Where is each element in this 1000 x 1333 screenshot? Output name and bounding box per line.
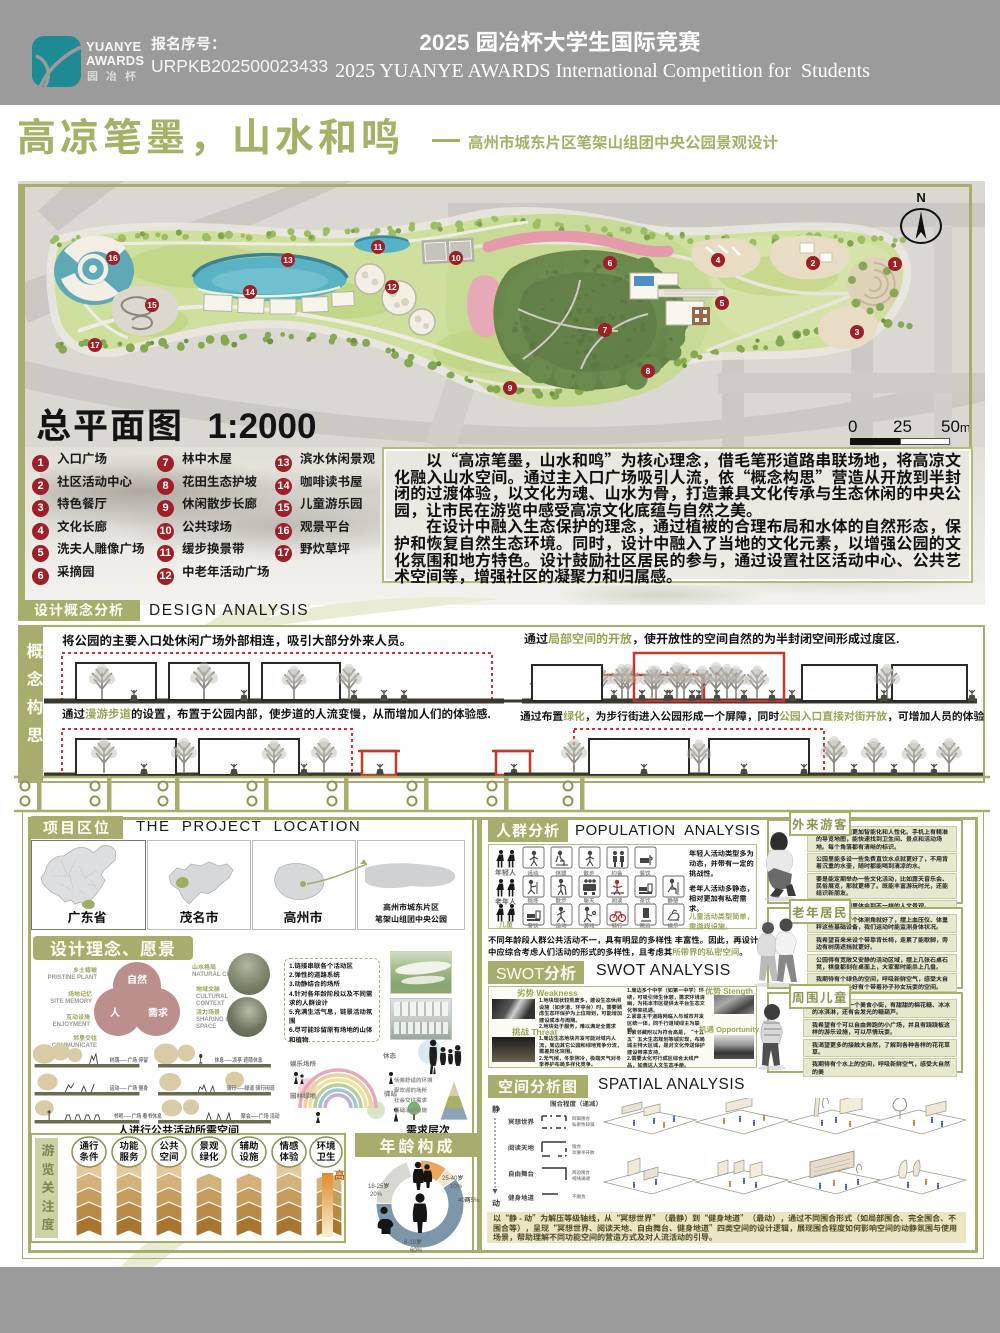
svg-text:社会交往需求: 社会交往需求 <box>394 1096 428 1104</box>
svg-text:高: 高 <box>334 1167 345 1183</box>
svg-text:茶饮: 茶饮 <box>639 897 651 905</box>
svg-text:私密性较强: 私密性较强 <box>572 1122 595 1128</box>
svg-text:餐饮: 餐饮 <box>527 922 539 929</box>
svg-text:10: 10 <box>451 253 461 263</box>
svg-text:茂名市: 茂名市 <box>179 907 218 926</box>
svg-text:自然: 自然 <box>127 971 147 986</box>
svg-text:散步: 散步 <box>555 897 567 905</box>
svg-text:1: 1 <box>893 259 898 269</box>
svg-text:8: 8 <box>646 366 651 376</box>
svg-text:骑行: 骑行 <box>611 922 623 929</box>
svg-text:书吧——广场 看书休息: 书吧——广场 看书休息 <box>114 1111 163 1120</box>
svg-text:13: 13 <box>283 255 293 265</box>
svg-text:16: 16 <box>108 253 118 263</box>
svg-text:受欢迎的场所: 受欢迎的场所 <box>394 1086 428 1094</box>
svg-text:游戏: 游戏 <box>583 922 595 929</box>
svg-text:体验: 体验 <box>279 1149 299 1163</box>
svg-text:聚会——广场 活动: 聚会——广场 活动 <box>241 1111 280 1120</box>
svg-text:围合程度（递减）: 围合程度（递减） <box>550 1098 602 1108</box>
svg-text:锻炼: 锻炼 <box>527 897 539 905</box>
svg-text:运动——广场 健身: 运动——广场 健身 <box>110 1083 149 1092</box>
svg-text:高州市: 高州市 <box>283 907 322 926</box>
svg-text:广东省: 广东省 <box>67 907 106 926</box>
svg-text:阅读天地: 阅读天地 <box>508 1142 535 1152</box>
svg-text:条件: 条件 <box>79 1149 99 1163</box>
svg-text:服务: 服务 <box>119 1149 139 1163</box>
svg-text:阅读: 阅读 <box>611 897 623 905</box>
svg-text:高州市城东片区: 高州市城东片区 <box>383 902 439 913</box>
svg-text:冥想世界: 冥想世界 <box>508 1116 535 1126</box>
svg-text:年轻人: 年轻人 <box>495 868 516 878</box>
svg-text:6: 6 <box>608 258 613 268</box>
svg-text:视线通透: 视线通透 <box>572 1176 590 1182</box>
svg-text:10%: 10% <box>450 1181 463 1190</box>
svg-text:健身地道: 健身地道 <box>508 1192 535 1202</box>
svg-text:静憩: 静憩 <box>667 897 679 905</box>
svg-text:3: 3 <box>855 327 860 337</box>
svg-text:9: 9 <box>508 383 513 393</box>
svg-text:20%: 20% <box>370 1189 383 1198</box>
svg-text:园林绿地: 园林绿地 <box>290 1090 317 1100</box>
svg-text:需求: 需求 <box>148 1004 168 1019</box>
svg-text:运动: 运动 <box>555 922 567 929</box>
svg-text:自由舞台: 自由舞台 <box>508 1168 535 1178</box>
svg-text:娱乐场所: 娱乐场所 <box>290 1058 317 1068</box>
svg-text:15: 15 <box>147 300 157 310</box>
svg-text:设施: 设施 <box>239 1149 259 1163</box>
svg-text:动: 动 <box>492 1198 500 1209</box>
svg-text:绿化: 绿化 <box>199 1149 219 1163</box>
svg-text:基础活动设施: 基础活动设施 <box>394 1106 428 1114</box>
svg-text:笔架山组团中央公园: 笔架山组团中央公园 <box>375 914 447 925</box>
svg-text:14: 14 <box>245 287 255 297</box>
svg-text:恬美舒适的环境: 恬美舒适的环境 <box>394 1076 433 1084</box>
svg-text:N: N <box>916 190 925 205</box>
svg-text:11: 11 <box>374 242 383 252</box>
svg-text:休息——凉亭 遮荫休息: 休息——凉亭 遮荫休息 <box>214 1055 263 1064</box>
svg-text:静: 静 <box>492 1104 500 1115</box>
svg-text:树荫——广场 停留: 树荫——广场 停留 <box>110 1055 149 1064</box>
svg-text:17: 17 <box>90 340 100 350</box>
svg-text:人: 人 <box>110 1004 120 1019</box>
svg-text:12: 12 <box>387 282 397 292</box>
svg-text:不围合: 不围合 <box>572 1194 586 1200</box>
svg-text:空间: 空间 <box>159 1149 178 1163</box>
svg-text:娱乐: 娱乐 <box>667 922 679 929</box>
svg-text:聊天: 聊天 <box>583 897 595 905</box>
svg-text:40两5%: 40两5% <box>458 1195 480 1204</box>
svg-text:5: 5 <box>720 298 725 308</box>
svg-text:跳远: 跳远 <box>639 922 651 929</box>
svg-text:60%: 60% <box>410 1245 423 1254</box>
svg-text:骑行——绿道 骑行闲逛: 骑行——绿道 骑行闲逛 <box>227 1083 276 1092</box>
svg-text:儿童: 儿童 <box>499 920 513 928</box>
svg-text:4: 4 <box>716 255 721 265</box>
svg-text:卫生: 卫生 <box>316 1149 336 1163</box>
svg-text:次要半开放: 次要半开放 <box>572 1150 595 1156</box>
svg-text:2: 2 <box>811 258 816 268</box>
svg-text:7: 7 <box>603 325 608 335</box>
